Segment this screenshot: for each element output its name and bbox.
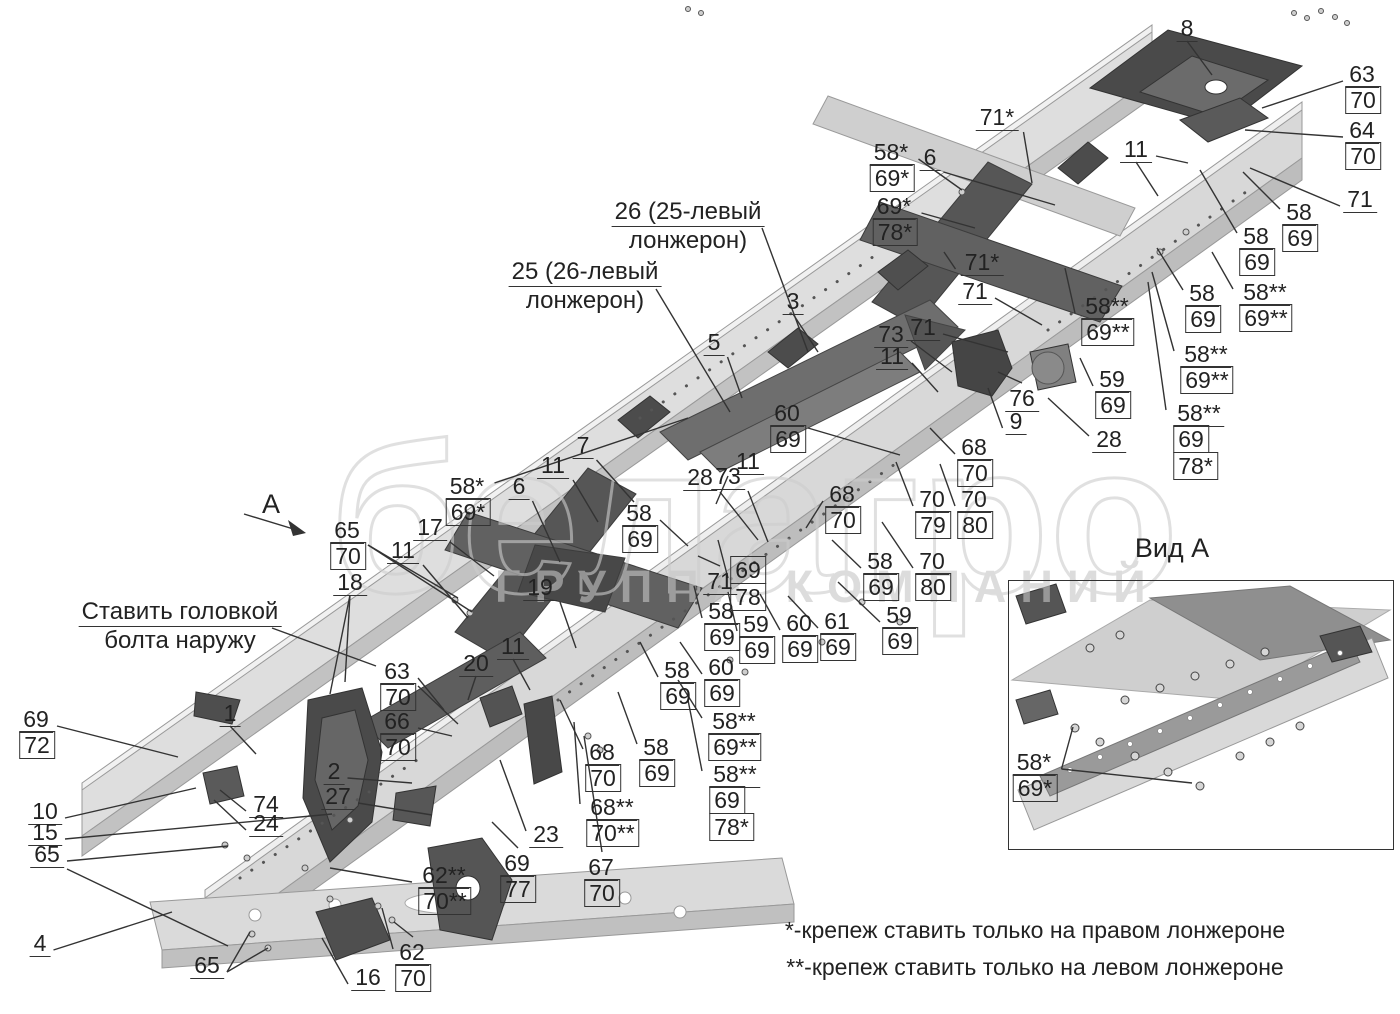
callout-68: 6870: [957, 434, 993, 487]
callout-number: 27: [321, 783, 355, 810]
leader-line: [1048, 398, 1089, 436]
leader-line: [382, 908, 393, 949]
callout-number: 63: [380, 658, 414, 685]
callout-11: 11: [387, 537, 419, 564]
leader-line: [660, 520, 688, 546]
leader-line: [423, 565, 468, 618]
footnote-right-spar: *-крепеж ставить только на правом лонжер…: [785, 917, 1285, 944]
callout-number: 58**: [708, 708, 759, 735]
callout-19: 19: [523, 574, 557, 601]
callout-number: 68**: [586, 794, 637, 821]
callout-number-boxed: 69**: [1180, 366, 1233, 394]
leader-line: [694, 586, 702, 618]
leader-line: [500, 760, 526, 831]
leader-line: [597, 460, 635, 502]
callout-number-boxed: 69: [622, 525, 658, 553]
callout-59: 5969: [882, 602, 918, 655]
leader-line: [65, 788, 196, 818]
callout-number-boxed: 69: [1282, 224, 1318, 252]
callout-58s: 58*69*: [1013, 749, 1058, 802]
leader-line: [573, 480, 598, 522]
callout-number-boxed: 69: [1173, 425, 1209, 453]
callout-58: 5869: [639, 734, 675, 787]
leader-line: [322, 938, 348, 984]
callout-number-boxed: 70: [585, 764, 621, 792]
leader-line: [1262, 81, 1343, 108]
callout-number: 71: [906, 314, 940, 341]
callout-number-boxed: 69: [1239, 248, 1275, 276]
callout-70: 7080: [957, 486, 993, 539]
leader-line: [230, 726, 256, 754]
callout-18: 18: [333, 569, 367, 596]
leader-line: [995, 298, 1042, 325]
leader-line: [65, 814, 332, 839]
callout-65: 65: [190, 952, 224, 979]
callout-number-boxed: 70: [957, 459, 993, 487]
callout-60: 6069: [704, 654, 740, 707]
callout-number-boxed: 69: [639, 759, 675, 787]
callout-number: 58**: [1180, 341, 1231, 368]
leader-line: [1157, 248, 1183, 290]
callout-24: 24: [249, 810, 283, 837]
callout-number: 73: [711, 463, 745, 490]
callout-11: 11: [876, 343, 908, 370]
callout-58ss: 58**69**: [708, 708, 761, 761]
leader-line: [808, 428, 900, 455]
annotation-line2: лонжерон): [612, 227, 765, 255]
callout-65: 65: [30, 841, 64, 868]
callout-63: 6370: [1345, 61, 1381, 114]
leader-line: [330, 868, 412, 882]
callout-65: 6570: [330, 517, 366, 570]
callout-number: 71*: [961, 249, 1004, 276]
leader-line: [912, 363, 938, 392]
callout-number-boxed: 70: [395, 964, 431, 992]
callout-71s: 71*: [961, 249, 1004, 276]
callout-58s: 58*69*: [446, 473, 491, 526]
callout-number: 58: [639, 734, 673, 761]
callout-11: 11: [537, 452, 569, 479]
leader-line: [492, 822, 518, 848]
callout-number: 28: [1092, 426, 1126, 453]
callout-58: 5869: [1185, 280, 1221, 333]
leader-line: [358, 803, 432, 815]
callout-number-boxed: 69: [820, 633, 856, 661]
callout-number: 16: [351, 964, 385, 991]
callout-number: 58: [660, 657, 694, 684]
callout-number: 58**: [1173, 400, 1224, 427]
callout-number: 58: [863, 548, 897, 575]
callout-6: 6: [509, 473, 530, 500]
callout-58ss: 58**69**: [1239, 279, 1292, 332]
callout-71: 71: [703, 568, 737, 595]
callout-number-boxed: 70: [1345, 86, 1381, 114]
callout-number: 6: [920, 144, 941, 171]
callout-number: 70: [915, 548, 949, 575]
leader-line: [533, 501, 561, 562]
leader-line: [1245, 130, 1343, 137]
leader-line: [67, 846, 228, 861]
annotation-line1: 26 (25-левый: [612, 198, 765, 227]
leader-line: [688, 700, 702, 771]
callout-73: 73: [711, 463, 745, 490]
leader-line: [720, 492, 758, 540]
callout-58: 5869: [1282, 199, 1318, 252]
callout-number: 70: [957, 486, 991, 513]
callout-number-boxed: 69: [882, 627, 918, 655]
annotation-note: Ставить головкойболта наружу: [79, 598, 282, 655]
callout-number: 62**: [418, 862, 469, 889]
leader-line: [450, 542, 494, 576]
callout-number: 5: [704, 329, 725, 356]
callout-number: 11: [876, 343, 908, 370]
callout-number: 62: [395, 939, 429, 966]
leader-line: [896, 462, 913, 506]
callout-number: 63: [1345, 61, 1379, 88]
leader-line: [560, 700, 583, 749]
callout-62: 6270: [395, 939, 431, 992]
callout-8: 8: [1177, 15, 1198, 42]
callout-number: 59: [882, 602, 916, 629]
callout-69s: 69*78*: [873, 193, 918, 246]
callout-66: 6670: [380, 708, 416, 761]
leader-line: [574, 722, 580, 804]
leader-line: [1136, 162, 1158, 196]
callout-number-boxed: 72: [19, 731, 55, 759]
callout-69: 6972: [19, 706, 55, 759]
leader-line: [911, 341, 952, 372]
leader-line: [418, 678, 444, 710]
leader-line: [930, 428, 955, 454]
callout-number-boxed: 79: [915, 511, 951, 539]
callout-number-boxed: 69**: [1239, 304, 1292, 332]
callout-number: 19: [523, 574, 557, 601]
callout-67: 6770: [584, 854, 620, 907]
callout-number: 58: [1185, 280, 1219, 307]
callout-number-boxed: 70: [380, 733, 416, 761]
leader-line: [272, 628, 376, 666]
leader-line: [418, 686, 458, 724]
callout-58: 5869: [863, 548, 899, 601]
callout-9: 9: [1006, 408, 1027, 435]
callout-number: 1: [220, 700, 241, 727]
callout-number: 64: [1345, 117, 1379, 144]
leader-line: [1065, 268, 1075, 313]
callout-number-boxed: 69**: [708, 733, 761, 761]
callout-number: 66: [380, 708, 414, 735]
leader-line: [922, 213, 976, 228]
callout-62ss: 62**70**: [418, 862, 471, 915]
callout-58ss: 58**69**: [1180, 341, 1233, 394]
callout-60: 6069: [770, 400, 806, 453]
callout-number: 9: [1006, 408, 1027, 435]
leader-line: [806, 501, 823, 528]
callout-63: 6370: [380, 658, 416, 711]
callout-number: 8: [1177, 15, 1198, 42]
callout-number: 60: [770, 400, 804, 427]
leader-line: [1148, 282, 1166, 410]
callout-number: 58**: [1239, 279, 1290, 306]
callout-1: 1: [220, 700, 241, 727]
annotation-note: 26 (25-левыйлонжерон): [612, 198, 765, 255]
callout-71: 71: [906, 314, 940, 341]
callout-number: 58*: [1013, 749, 1056, 776]
callout-number-boxed: 78*: [1173, 452, 1218, 480]
callout-number-boxed: 70: [330, 542, 366, 570]
parts-diagram-page: белагро ГРУППА КОМПАНИЙ А Вид А *-крепеж…: [0, 0, 1400, 1014]
annotation-line1: Ставить головкой: [79, 598, 282, 627]
callout-number: 59: [739, 611, 773, 638]
leader-line: [394, 922, 413, 937]
callout-number: 70: [915, 486, 949, 513]
callout-number-boxed: 69: [1185, 305, 1221, 333]
callout-number: 60: [704, 654, 738, 681]
leader-line: [1156, 156, 1188, 163]
leader-line: [1187, 41, 1212, 75]
callout-58: 5869: [622, 500, 658, 553]
callout-number: 20: [459, 650, 493, 677]
callout-number-boxed: 69: [660, 682, 696, 710]
callout-68: 6870: [825, 481, 861, 534]
leader-line: [368, 545, 472, 612]
leader-line: [513, 659, 530, 690]
leader-line: [348, 778, 413, 783]
callout-number: 69*: [873, 193, 916, 220]
callout-number-boxed: 70: [584, 879, 620, 907]
callout-3: 3: [783, 288, 804, 315]
callout-60: 6069: [782, 610, 818, 663]
leader-line: [1243, 172, 1280, 209]
callout-number: 58: [622, 500, 656, 527]
callout-71: 71: [1343, 186, 1377, 213]
callout-number: 67: [584, 854, 618, 881]
callout-number-boxed: 69: [1095, 391, 1131, 419]
callout-number-boxed: 69*: [446, 498, 491, 526]
leader-line: [560, 602, 576, 648]
callout-number-boxed: 78*: [873, 218, 918, 246]
view-a-frame: [1008, 580, 1394, 850]
callout-number: 11: [537, 452, 569, 479]
callout-number: 68: [825, 481, 859, 508]
annotation-line2: лонжерон): [509, 287, 662, 315]
callout-number: 23: [529, 821, 563, 848]
leader-line: [748, 491, 768, 542]
callout-71s: 71*: [976, 104, 1019, 131]
callout-number: 69: [500, 850, 534, 877]
leader-line: [54, 912, 173, 950]
callout-11: 11: [497, 633, 529, 660]
callout-number: 65: [190, 952, 224, 979]
leader-line: [418, 728, 452, 736]
callout-number-boxed: 69*: [870, 164, 915, 192]
callout-61: 6169: [820, 608, 856, 661]
callout-number: 61: [820, 608, 854, 635]
callout-number: 68: [957, 434, 991, 461]
leader-line: [832, 540, 861, 568]
callout-27: 27: [321, 783, 355, 810]
callout-64: 6470: [1345, 117, 1381, 170]
callout-number: 71*: [976, 104, 1019, 131]
callout-number: 24: [249, 810, 283, 837]
callout-23: 23: [529, 821, 563, 848]
leader-line: [728, 357, 743, 398]
callout-number: 60: [782, 610, 816, 637]
callout-number: 7: [573, 432, 594, 459]
callout-71: 71: [958, 278, 992, 305]
view-direction-letter: А: [262, 489, 280, 520]
annotation-note: 25 (26-левыйлонжерон): [509, 258, 662, 315]
callout-number-boxed: 69: [704, 679, 740, 707]
callout-20: 20: [459, 650, 493, 677]
callout-number-boxed: 70**: [586, 819, 639, 847]
callout-number-boxed: 69: [739, 636, 775, 664]
callout-70: 7080: [915, 548, 951, 601]
leader-line: [698, 556, 720, 566]
callout-6: 6: [920, 144, 941, 171]
callout-number: 11: [1120, 136, 1152, 163]
callout-number-boxed: 69: [709, 786, 745, 814]
annotation-line1: 25 (26-левый: [509, 258, 662, 287]
callout-number-boxed: 70: [1345, 142, 1381, 170]
callout-number: 65: [330, 517, 364, 544]
callout-number-boxed: 69*: [1013, 774, 1058, 802]
callout-number: 58**: [709, 761, 760, 788]
leader-line: [998, 372, 1022, 383]
callout-number-boxed: 80: [957, 511, 993, 539]
callout-number: 59: [1095, 366, 1129, 393]
callout-number-boxed: 80: [915, 573, 951, 601]
callout-number: 71: [1343, 186, 1377, 213]
callout-number-boxed: 77: [500, 875, 536, 903]
callout-59: 5969: [1095, 366, 1131, 419]
leader-line: [468, 676, 476, 700]
callout-68: 6870: [585, 739, 621, 792]
callout-number: 2: [324, 758, 345, 785]
callout-58: 5869: [660, 657, 696, 710]
callout-number: 69: [19, 706, 53, 733]
callout-number: 18: [333, 569, 367, 596]
callout-number: 6: [509, 473, 530, 500]
callout-69: 6977: [500, 850, 536, 903]
leader-line: [220, 790, 246, 811]
leader-line: [618, 692, 637, 744]
callout-number: 71: [958, 278, 992, 305]
callout-number: 3: [783, 288, 804, 315]
leader-line: [944, 252, 956, 269]
callout-number: 11: [497, 633, 529, 660]
leader-line: [214, 800, 246, 830]
leader-line: [988, 388, 1003, 428]
callout-5: 5: [704, 329, 725, 356]
annotation-line2: болта наружу: [79, 627, 282, 655]
callout-70: 7079: [915, 486, 951, 539]
leader-line: [943, 334, 1008, 352]
callout-58ss: 58**6978*: [709, 761, 760, 841]
callout-28: 28: [1092, 426, 1126, 453]
callout-68ss: 68**70**: [586, 794, 639, 847]
callout-4: 4: [30, 930, 51, 957]
callout-number: 58**: [1081, 293, 1132, 320]
leader-line: [640, 642, 658, 677]
leader-line: [1024, 132, 1033, 183]
callout-58s: 58*69*: [870, 139, 915, 192]
callout-number: 58: [1282, 199, 1316, 226]
callout-58ss: 58**6978*: [1173, 400, 1224, 480]
leader-line: [1080, 358, 1093, 386]
leader-line: [1200, 170, 1237, 233]
callout-number: 71: [703, 568, 737, 595]
callout-number: 58: [1239, 223, 1273, 250]
callout-58ss: 58**69**: [1081, 293, 1134, 346]
callout-number-boxed: 69: [770, 425, 806, 453]
callout-number: 58*: [446, 473, 489, 500]
callout-number: 4: [30, 930, 51, 957]
callout-number-boxed: 70**: [418, 887, 471, 915]
callout-number: 65: [30, 841, 64, 868]
leader-line: [57, 726, 178, 757]
callout-number-boxed: 69**: [1081, 318, 1134, 346]
callout-16: 16: [351, 964, 385, 991]
callout-number: 68: [585, 739, 619, 766]
leader-lines-layer: [0, 0, 1400, 1014]
view-a-title: Вид А: [1135, 533, 1209, 564]
callout-11: 11: [1120, 136, 1152, 163]
callout-number-boxed: 69: [704, 623, 740, 651]
callout-number-boxed: 69: [863, 573, 899, 601]
callout-7: 7: [573, 432, 594, 459]
callout-number: 11: [387, 537, 419, 564]
callout-58: 5869: [1239, 223, 1275, 276]
leader-line: [1152, 272, 1174, 351]
callout-59: 5969: [739, 611, 775, 664]
callout-number: 58*: [870, 139, 913, 166]
callout-2: 2: [324, 758, 345, 785]
leader-line: [67, 869, 228, 946]
footnote-left-spar: **-крепеж ставить только на левом лонжер…: [786, 954, 1283, 981]
callout-number-boxed: 70: [825, 506, 861, 534]
callout-number-boxed: 69: [782, 635, 818, 663]
callout-number-boxed: 78*: [709, 813, 754, 841]
